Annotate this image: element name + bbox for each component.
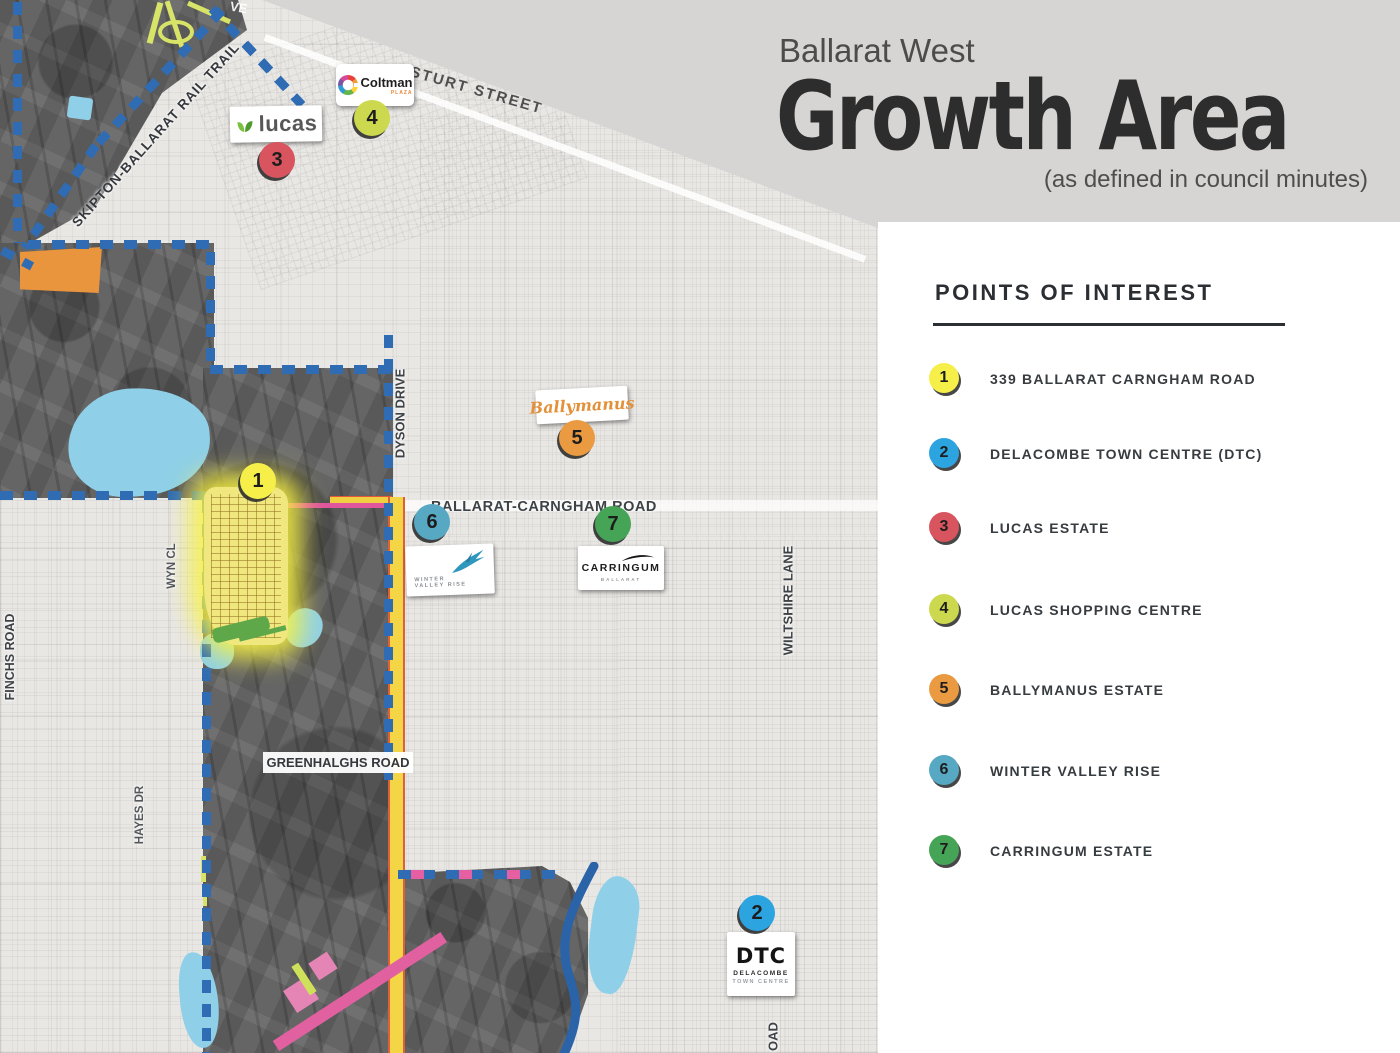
- boundary-dash-h3: [0, 491, 206, 500]
- water-pond-northwest: [67, 95, 94, 120]
- orange-parcel-highlight: [20, 247, 102, 293]
- dtc-town-centre-text: TOWN CENTRE: [732, 979, 789, 985]
- map-marker-1[interactable]: 1: [240, 463, 276, 499]
- poi-row-3: 3 LUCAS ESTATE: [929, 512, 1110, 542]
- road-label-wyn-cl: WYN CL: [166, 531, 178, 601]
- poi-row-7: 7 CARRINGUM ESTATE: [929, 835, 1153, 865]
- estate-339-carngham-highlight: [204, 487, 288, 645]
- poi-label-2: DELACOMBE TOWN CENTRE (DTC): [990, 445, 1262, 462]
- boundary-pinkdash-2: [459, 870, 472, 879]
- lucas-logo-text: lucas: [258, 110, 317, 137]
- carringum-swoosh-icon: [620, 553, 656, 562]
- poi-badge-4: 4: [929, 594, 959, 624]
- map-marker-6[interactable]: 6: [414, 504, 450, 540]
- boundary-dash-v1: [206, 252, 215, 370]
- poi-row-5: 5 BALLYMANUS ESTATE: [929, 674, 1164, 704]
- poi-label-7: CARRINGUM ESTATE: [990, 842, 1153, 859]
- coltman-ring-icon: [338, 75, 358, 95]
- boundary-dash-h2: [210, 365, 394, 374]
- poi-badge-3: 3: [929, 512, 959, 542]
- road-label-hayes-dr: HAYES DR: [134, 778, 146, 852]
- poi-row-2: 2 DELACOMBE TOWN CENTRE (DTC): [929, 438, 1262, 468]
- boundary-solid-creek-line: [552, 862, 622, 1053]
- boundary-dash-west-edge: [13, 2, 22, 243]
- boundary-pinkdash-3: [507, 870, 520, 879]
- road-label-wiltshire-lane: WILTSHIRE LANE: [781, 531, 796, 671]
- poi-title-underline: [933, 323, 1285, 326]
- poi-badge-1: 1: [929, 363, 959, 393]
- road-label-finchs-road: FINCHS ROAD: [3, 609, 17, 705]
- coltman-logo-text: Coltman: [361, 75, 413, 90]
- map-marker-4[interactable]: 4: [354, 100, 390, 136]
- carngham-road-yellow-segment: [330, 496, 392, 503]
- winter-valley-bird-icon: [447, 548, 488, 575]
- boundary-dash-h1: [28, 240, 218, 249]
- road-label-greenhalghs-road: GREENHALGHS ROAD: [263, 752, 413, 773]
- lucas-leaf-icon: [234, 114, 254, 134]
- carringum-logo-text: CARRINGUM: [582, 562, 661, 574]
- poi-badge-2: 2: [929, 438, 959, 468]
- winter-valley-rise-logo[interactable]: WINTER VALLEY RISE: [405, 543, 495, 596]
- poi-row-1: 1 339 BALLARAT CARNGHAM ROAD: [929, 363, 1256, 393]
- poi-badge-7: 7: [929, 835, 959, 865]
- title-subtitle: (as defined in council minutes): [778, 166, 1368, 194]
- dtc-logo-text: DTC: [736, 944, 786, 968]
- map-marker-5[interactable]: 5: [559, 420, 595, 456]
- poi-label-6: WINTER VALLEY RISE: [990, 762, 1161, 779]
- dtc-logo[interactable]: DTC DELACOMBE TOWN CENTRE: [727, 932, 795, 996]
- poi-label-1: 339 BALLARAT CARNGHAM ROAD: [990, 370, 1256, 387]
- road-label-ave-partial: VE: [229, 0, 249, 16]
- carringum-ballarat-text: BALLARAT: [601, 577, 641, 582]
- map-marker-7[interactable]: 7: [595, 506, 631, 542]
- lucas-logo[interactable]: lucas: [230, 105, 323, 143]
- poi-panel-title: POINTS OF INTEREST: [935, 280, 1213, 306]
- map-canvas: SKIPTON-BALLARAT RAIL TRAIL STURT STREET…: [0, 0, 1400, 1053]
- poi-badge-6: 6: [929, 755, 959, 785]
- ballymanus-logo-text: Ballymanus: [529, 393, 635, 417]
- poi-label-3: LUCAS ESTATE: [990, 519, 1110, 536]
- carringum-logo[interactable]: CARRINGUM BALLARAT: [578, 546, 664, 590]
- poi-label-4: LUCAS SHOPPING CENTRE: [990, 601, 1203, 618]
- ballymanus-logo[interactable]: Ballymanus: [535, 386, 629, 425]
- road-label-road-partial: OAD: [766, 1012, 781, 1053]
- poi-label-5: BALLYMANUS ESTATE: [990, 681, 1164, 698]
- poi-badge-5: 5: [929, 674, 959, 704]
- satellite-region-central: [203, 368, 393, 1053]
- boundary-pinkdash-1: [411, 870, 424, 879]
- poi-row-6: 6 WINTER VALLEY RISE: [929, 755, 1161, 785]
- coltman-plaza-text: PLAZA: [391, 90, 413, 96]
- road-label-dyson-drive: DYSON DRIVE: [393, 344, 408, 484]
- map-marker-3[interactable]: 3: [259, 142, 295, 178]
- winter-valley-text-line2: VALLEY RISE: [414, 581, 466, 589]
- map-marker-2[interactable]: 2: [739, 895, 775, 931]
- points-of-interest-panel: POINTS OF INTEREST 1 339 BALLARAT CARNGH…: [878, 222, 1400, 1053]
- dtc-delacombe-text: DELACOMBE: [733, 970, 788, 977]
- page-title: Growth Area: [776, 62, 1288, 172]
- poi-row-4: 4 LUCAS SHOPPING CENTRE: [929, 594, 1203, 624]
